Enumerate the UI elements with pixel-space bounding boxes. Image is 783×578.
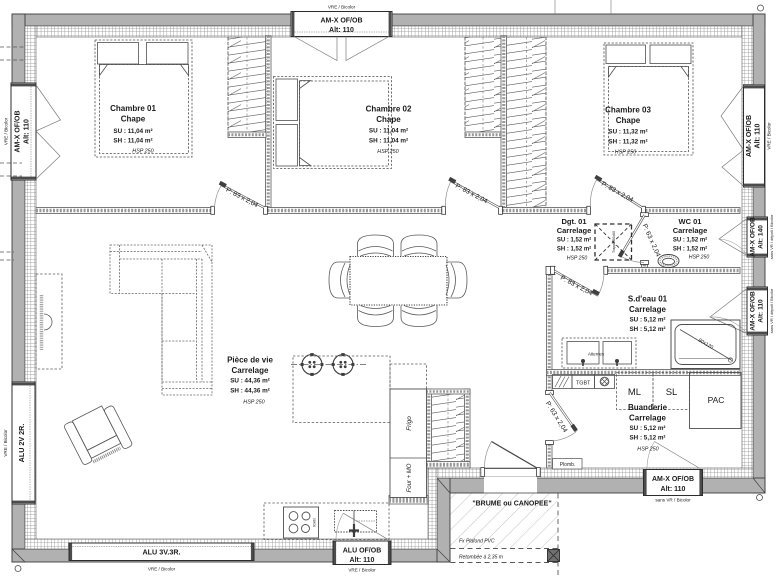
svg-text:VRE / Bicolor: VRE / Bicolor (328, 5, 356, 10)
svg-text:SL: SL (666, 387, 678, 398)
svg-text:VRE / Bicolor: VRE / Bicolor (767, 122, 772, 150)
svg-text:Chambre 02: Chambre 02 (366, 105, 412, 114)
svg-text:HSP 250: HSP 250 (615, 150, 636, 156)
svg-text:Chape: Chape (616, 116, 641, 125)
svg-text:VRE / Bicolor: VRE / Bicolor (348, 568, 376, 573)
svg-text:90x60: 90x60 (313, 518, 317, 527)
svg-text:Carrelage: Carrelage (629, 414, 666, 423)
svg-text:Attentes: Attentes (588, 352, 605, 357)
svg-text:VRE / Bicolor: VRE / Bicolor (148, 567, 176, 572)
svg-text:Alt: 110: Alt: 110 (661, 486, 686, 493)
svg-text:SH : 1,52 m²: SH : 1,52 m² (557, 246, 591, 253)
svg-text:SH : 11,04 m²: SH : 11,04 m² (369, 138, 408, 145)
svg-text:Alt: 110: Alt: 110 (755, 123, 762, 148)
svg-text:ML: ML (628, 387, 641, 398)
svg-text:SU : 5,12 m²: SU : 5,12 m² (629, 425, 665, 432)
svg-text:Trappe 60x60: Trappe 60x60 (612, 231, 616, 253)
svg-text:Alt: 110: Alt: 110 (329, 27, 354, 34)
svg-text:SU : 1,52 m²: SU : 1,52 m² (557, 237, 591, 244)
svg-text:Chape: Chape (121, 115, 146, 124)
svg-text:Chambre 01: Chambre 01 (110, 104, 156, 113)
svg-text:Dgt. 01: Dgt. 01 (561, 217, 586, 226)
svg-text:SU : 5,12 m²: SU : 5,12 m² (629, 317, 665, 324)
svg-text:S.d'eau 01: S.d'eau 01 (628, 295, 668, 304)
svg-text:Plomb.: Plomb. (560, 462, 576, 468)
svg-text:SU : 11,04 m²: SU : 11,04 m² (113, 128, 152, 135)
svg-text:Fx Plafond PVC: Fx Plafond PVC (459, 539, 495, 545)
svg-text:AM-X OF/OB: AM-X OF/OB (750, 291, 757, 331)
svg-text:HSP 250: HSP 250 (377, 149, 398, 155)
svg-text:SH : 5,12 m²: SH : 5,12 m² (629, 326, 665, 333)
svg-text:HSP 250: HSP 250 (243, 400, 264, 406)
svg-text:SU : 44,36 m²: SU : 44,36 m² (230, 378, 270, 385)
svg-text:sans VR / dépoli / Bicolor: sans VR / dépoli / Bicolor (769, 214, 774, 259)
svg-text:HSP 250: HSP 250 (689, 255, 710, 261)
svg-text:Carrelage: Carrelage (557, 226, 592, 235)
svg-text:SH : 5,12 m²: SH : 5,12 m² (629, 435, 665, 442)
svg-text:AM-X OF/OB: AM-X OF/OB (15, 111, 22, 153)
svg-text:SU : 1,52 m²: SU : 1,52 m² (673, 237, 707, 244)
svg-text:AM-X OF/OB: AM-X OF/OB (652, 476, 694, 483)
svg-text:SH : 44,36 m²: SH : 44,36 m² (230, 388, 270, 395)
svg-text:SU : 11,04 m²: SU : 11,04 m² (369, 128, 408, 135)
svg-text:TGBT: TGBT (576, 380, 591, 386)
svg-text:SU : 11,32 m²: SU : 11,32 m² (608, 129, 647, 136)
svg-text:ALU 2V 2R.: ALU 2V 2R. (17, 424, 26, 463)
svg-text:VRE / Bicolor: VRE / Bicolor (4, 117, 9, 145)
svg-text:ALU 3V.3R.: ALU 3V.3R. (142, 548, 180, 557)
svg-text:Carrelage: Carrelage (232, 366, 269, 375)
svg-text:sans VR / dépoli / Bicolor: sans VR / dépoli / Bicolor (769, 288, 774, 333)
svg-text:Four + MO: Four + MO (407, 463, 413, 492)
svg-text:ALU OF/OB: ALU OF/OB (343, 548, 382, 555)
svg-text:SH : 1,52 m²: SH : 1,52 m² (673, 246, 707, 253)
svg-text:AM-X OF/OB: AM-X OF/OB (321, 18, 363, 25)
svg-text:Alt: 110: Alt: 110 (758, 299, 765, 323)
svg-text:Pièce de vie: Pièce de vie (227, 356, 273, 365)
svg-text:AM-X OF/OB: AM-X OF/OB (746, 115, 753, 157)
svg-text:VRE / Bicolor: VRE / Bicolor (3, 429, 8, 457)
svg-text:Alt: 140: Alt: 140 (758, 225, 765, 249)
svg-text:HSP 250: HSP 250 (637, 447, 658, 453)
svg-text:Alt: 110: Alt: 110 (24, 119, 31, 144)
svg-text:SH : 11,32 m²: SH : 11,32 m² (608, 139, 647, 146)
svg-text:WC 01: WC 01 (679, 217, 702, 226)
svg-text:"BRUME ou CANOPEE": "BRUME ou CANOPEE" (472, 501, 551, 508)
svg-text:HSP 250: HSP 250 (132, 149, 153, 155)
svg-text:Carrelage: Carrelage (629, 305, 666, 314)
svg-text:Retombée à 2,35 m: Retombée à 2,35 m (459, 555, 503, 561)
svg-text:Frigo: Frigo (406, 416, 413, 431)
svg-text:AM-X OF/OB: AM-X OF/OB (750, 217, 757, 257)
svg-text:HSP 250: HSP 250 (567, 256, 588, 262)
svg-text:PAC: PAC (708, 395, 725, 405)
svg-text:SH : 11,04 m²: SH : 11,04 m² (113, 138, 152, 145)
svg-text:sans VR / Bicolor: sans VR / Bicolor (655, 498, 691, 503)
svg-text:Chape: Chape (376, 115, 401, 124)
svg-text:Chambre 03: Chambre 03 (605, 106, 651, 115)
svg-text:Carrelage: Carrelage (673, 226, 708, 235)
svg-text:Buanderie: Buanderie (628, 403, 668, 412)
svg-text:Alt: 110: Alt: 110 (350, 557, 375, 564)
